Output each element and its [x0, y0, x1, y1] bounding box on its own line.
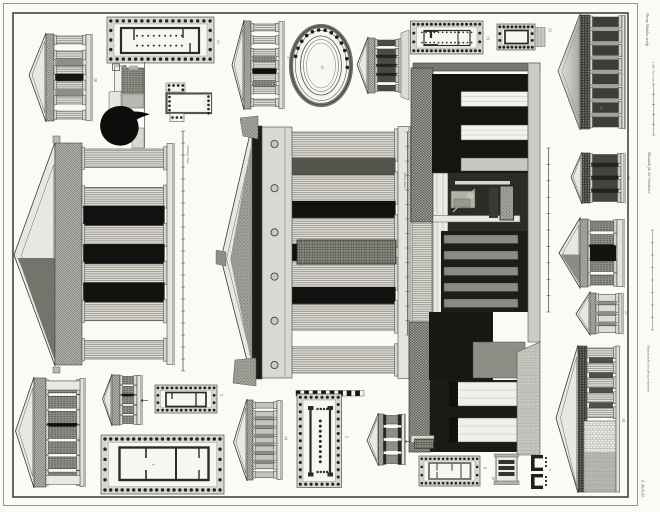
- svg-text:A. Beck del.: A. Beck del.: [641, 479, 645, 498]
- svg-text:To Par Fuss: To Par Fuss: [403, 172, 407, 188]
- svg-text:Henry Winkles sculp.: Henry Winkles sculp.: [645, 12, 650, 47]
- svg-text:12: 12: [320, 65, 324, 69]
- svg-text:20: 20: [93, 78, 98, 82]
- svg-text:14: 14: [284, 436, 288, 440]
- svg-text:Maasstab für die übrigen Antik: Maasstab für die übrigen Antiken: [647, 344, 651, 392]
- svg-text:Maasstab für die Grundrisse: Maasstab für die Grundrisse: [647, 151, 651, 194]
- svg-text:23: 23: [548, 28, 552, 32]
- svg-text:19: 19: [491, 476, 495, 480]
- svg-text:18: 18: [621, 418, 625, 422]
- svg-text:16: 16: [599, 106, 604, 110]
- svg-text:8: 8: [483, 467, 487, 469]
- svg-text:15: 15: [486, 36, 491, 40]
- svg-text:11: 11: [548, 468, 552, 471]
- svg-text:2.: 2.: [345, 436, 349, 439]
- svg-text:4 Akl. Par. Fuss: 4 Akl. Par. Fuss: [652, 62, 656, 84]
- svg-text:21: 21: [624, 311, 628, 315]
- svg-text:1.: 1.: [151, 464, 156, 467]
- svg-text:21: 21: [216, 40, 221, 44]
- svg-text:3: 3: [219, 394, 223, 396]
- svg-text:16 Engl. Fuss: 16 Engl. Fuss: [186, 145, 190, 164]
- svg-text:22: 22: [626, 176, 630, 180]
